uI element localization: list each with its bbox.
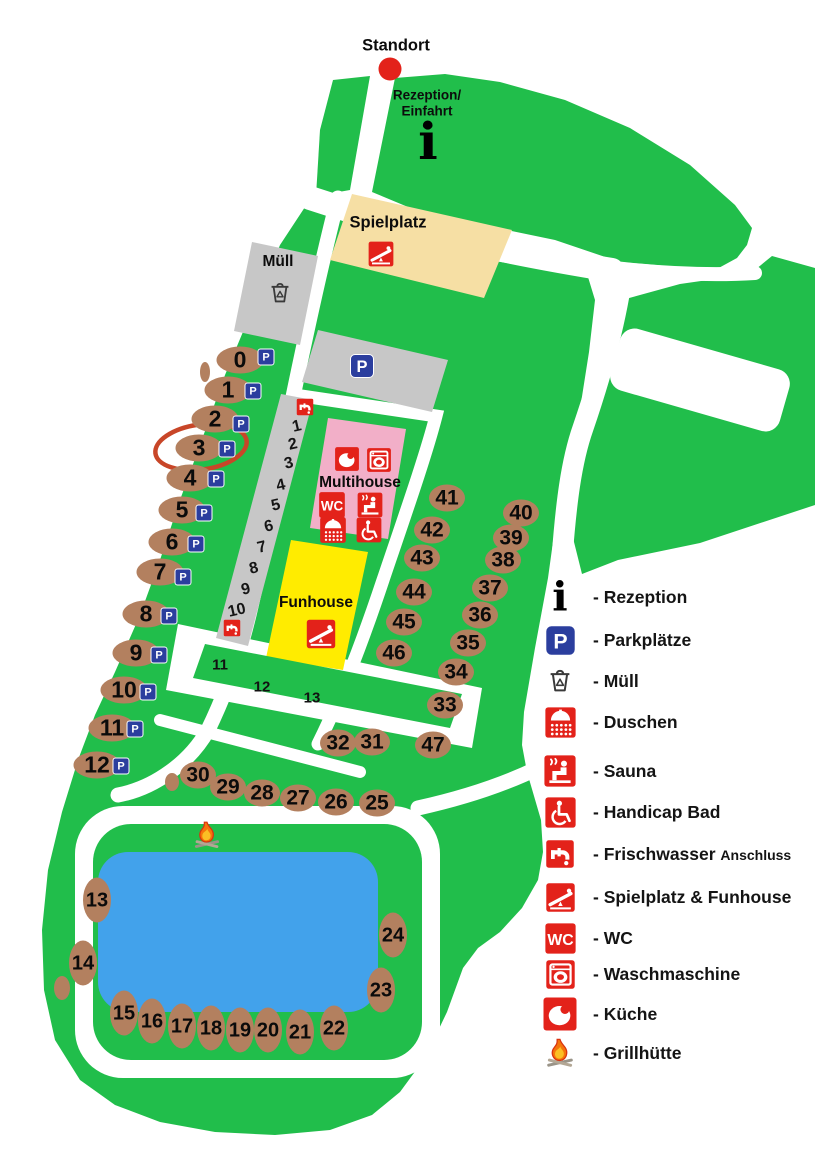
washer-icon-wrap (366, 447, 392, 473)
kitchen-icon-wrap (334, 446, 360, 472)
legend-row: - Sauna (542, 751, 656, 791)
pitch-marker-2: 2 (192, 406, 239, 433)
pitch-number: 11 (100, 717, 124, 740)
wc-icon (318, 491, 346, 519)
pitch-marker-0: 0 (217, 347, 264, 374)
tap-icon-wrap (223, 619, 241, 637)
pitch-number: 14 (72, 953, 94, 973)
standort-label: Standort (362, 37, 430, 56)
handicap-icon-wrap (356, 517, 383, 544)
parking-badge-icon: P (175, 569, 192, 586)
wc-icon (544, 922, 577, 955)
legend-label: - Frischwasser Anschluss (593, 844, 791, 865)
legend-label: - Küche (593, 1004, 657, 1025)
parking-badge-icon: P (113, 758, 130, 775)
pitch-number: 4 (184, 467, 197, 490)
parking-badge-icon: P (258, 349, 275, 366)
shower-icon (319, 516, 347, 544)
reception-label-line2: Einfahrt (401, 104, 452, 119)
shower-icon (544, 706, 577, 739)
area-label-11: 11 (212, 657, 228, 674)
area-label-13: 13 (304, 690, 321, 707)
area-label-12: 12 (254, 679, 271, 696)
handicap-icon (544, 796, 577, 829)
parking-badge-icon: P (188, 536, 205, 553)
parking-badge-icon: P (219, 441, 236, 458)
pitch-marker-28: 28 (244, 780, 280, 807)
pitch-number: 45 (392, 612, 415, 633)
trash-icon-wrap (267, 280, 294, 307)
sauna-icon-wrap (357, 492, 384, 519)
pitch-number: 22 (323, 1018, 345, 1038)
legend-icon-box (542, 996, 578, 1032)
legend-row: - Handicap Bad (542, 792, 720, 832)
multihouse-label: Multihouse (319, 474, 401, 492)
parking-badge-icon: P (245, 383, 262, 400)
pitch-number: 17 (171, 1016, 193, 1036)
legend-icon-box (542, 1036, 578, 1070)
shower-icon-wrap (319, 516, 347, 544)
parking-badge-icon: P (140, 684, 157, 701)
pitch-marker-21: 21 (286, 1010, 314, 1055)
pitch-marker-30: 30 (180, 762, 216, 789)
legend-icon-box (542, 796, 578, 829)
legend-row: - Müll (542, 661, 639, 701)
sauna-icon (357, 492, 384, 519)
pitch-marker-41: 41 (429, 485, 465, 512)
parking-badge-icon: P (161, 608, 178, 625)
pitch-number: 46 (382, 643, 405, 664)
pitch-number: 42 (420, 520, 443, 541)
legend-label: - Spielplatz & Funhouse (593, 887, 791, 908)
seesaw-icon-wrap (306, 619, 337, 650)
pitch-marker-18: 18 (197, 1006, 225, 1051)
pitch-marker-19: 19 (226, 1008, 254, 1053)
pitch-number: 39 (499, 528, 522, 549)
pitch-marker-26: 26 (318, 789, 354, 816)
pitch-marker-4: 4 (167, 465, 214, 492)
sauna-icon (543, 754, 577, 788)
pitch-marker-44: 44 (396, 579, 432, 606)
legend-icon-box (542, 839, 578, 869)
funhouse-label: Funhouse (279, 594, 353, 612)
washer-icon (366, 447, 392, 473)
pitch-marker-33: 33 (427, 692, 463, 719)
pitch-marker-24: 24 (379, 913, 407, 958)
parking-badge-icon: P (208, 471, 225, 488)
legend-row: - Rezeption (542, 577, 687, 617)
pitch-marker-25: 25 (359, 790, 395, 817)
pitch-marker-39: 39 (493, 525, 529, 552)
pitch-number: 6 (166, 531, 179, 554)
pitch-marker-20: 20 (254, 1008, 282, 1053)
pond (98, 852, 378, 1012)
parking-badge-icon: P (127, 721, 144, 738)
pitch-marker-13: 13 (83, 878, 111, 923)
pitch-number: 10 (111, 679, 137, 702)
legend-label: - Grillhütte (593, 1043, 681, 1064)
parking-icon (545, 625, 576, 656)
pitch-marker-22: 22 (320, 1006, 348, 1051)
pitch-number: 7 (154, 561, 167, 584)
pitch-number: 0 (234, 349, 247, 372)
parking-icon (350, 354, 374, 378)
wc-icon-wrap (318, 491, 346, 519)
legend-row: - Duschen (542, 702, 678, 742)
pitch-number: 8 (140, 603, 153, 626)
pitch-number: 27 (286, 788, 309, 809)
pitch-number: 20 (257, 1020, 279, 1040)
washer-icon (545, 959, 576, 990)
pitch-number: 18 (200, 1018, 222, 1038)
pitch-marker-3: 3 (176, 435, 223, 462)
legend-icon-box (542, 706, 578, 739)
pitch-marker-32: 32 (320, 730, 356, 757)
muell-label: Müll (263, 253, 294, 271)
info-icon (405, 119, 451, 165)
trash-icon (545, 666, 575, 696)
legend-label: - Müll (593, 671, 639, 692)
seesaw-icon (368, 241, 395, 268)
pitch-number: 32 (326, 733, 349, 754)
pitch-number: 34 (444, 662, 467, 683)
pitch-number: 26 (324, 792, 347, 813)
pitch-marker-16: 16 (138, 999, 166, 1044)
pitch-number: 5 (176, 499, 189, 522)
pitch-number: 43 (410, 548, 433, 569)
pitch-number: 35 (456, 633, 479, 654)
pitch-number: 2 (209, 408, 222, 431)
pitch-number: 12 (84, 754, 110, 777)
legend-icon-box (542, 754, 578, 788)
campfire-icon (543, 1036, 577, 1070)
tap-icon (296, 398, 314, 416)
parking-icon-wrap (350, 354, 374, 378)
pitch-number: 38 (491, 550, 514, 571)
legend-row: - Grillhütte (542, 1033, 681, 1073)
pitch-marker-46: 46 (376, 640, 412, 667)
pitch-marker-43: 43 (404, 545, 440, 572)
legend-label: - Parkplätze (593, 630, 691, 651)
pitch-number: 13 (86, 890, 108, 910)
pitch-marker-36: 36 (462, 602, 498, 629)
spielplatz-label: Spielplatz (349, 214, 426, 233)
pitch-number: 30 (186, 765, 209, 786)
parking-badge-icon: P (151, 647, 168, 664)
info-icon (542, 578, 578, 616)
legend-row: - Küche (542, 994, 657, 1034)
pitch-number: 1 (222, 379, 235, 402)
reception-label-line1: Rezeption/ (393, 88, 461, 103)
pitch-marker-37: 37 (472, 575, 508, 602)
seesaw-icon (545, 882, 576, 913)
parking-badge-icon: P (233, 416, 250, 433)
pitch-number: 25 (365, 793, 388, 814)
pitch-marker-31: 31 (354, 729, 390, 756)
pitch-marker-35: 35 (450, 630, 486, 657)
pitch-number: 29 (216, 777, 239, 798)
pitch-number: 44 (402, 582, 425, 603)
kitchen-icon (334, 446, 360, 472)
legend-row: - Spielplatz & Funhouse (542, 877, 791, 917)
tap-icon (545, 839, 575, 869)
pitch-number: 19 (229, 1020, 251, 1040)
kitchen-icon (542, 996, 578, 1032)
pitch-number: 33 (433, 695, 456, 716)
pitch-number: 47 (421, 735, 444, 756)
legend-row: - WC (542, 918, 633, 958)
pitch-number: 31 (360, 732, 383, 753)
tap-icon-wrap (296, 398, 314, 416)
pitch-marker-34: 34 (438, 659, 474, 686)
legend-label-small: Anschluss (720, 847, 791, 863)
legend-row: - Waschmaschine (542, 954, 740, 994)
pitch-marker-27: 27 (280, 785, 316, 812)
handicap-icon (356, 517, 383, 544)
pitch-number: 40 (509, 503, 532, 524)
info-icon-wrap (405, 119, 451, 165)
legend-icon-box (542, 882, 578, 913)
pitch-marker-15: 15 (110, 991, 138, 1036)
legend-label: - WC (593, 928, 633, 949)
legend-label: - Rezeption (593, 587, 687, 608)
legend-label: - Duschen (593, 712, 678, 733)
pitch-number: 9 (130, 642, 143, 665)
legend-icon-box (542, 959, 578, 990)
pitch-number: 36 (468, 605, 491, 626)
pitch-number: 28 (250, 783, 273, 804)
pitch-number: 41 (435, 488, 458, 509)
pitch-marker-47: 47 (415, 732, 451, 759)
campfire-icon-wrap (191, 819, 223, 851)
legend-row: - Parkplätze (542, 620, 691, 660)
pitch-number: 23 (370, 980, 392, 1000)
pitch-number: 24 (382, 925, 404, 945)
legend-label: - Waschmaschine (593, 964, 740, 985)
pitch-marker-23: 23 (367, 968, 395, 1013)
tap-icon (223, 619, 241, 637)
legend-label: - Sauna (593, 761, 656, 782)
pitch-number: 21 (289, 1022, 311, 1042)
pitch-marker-40: 40 (503, 500, 539, 527)
pitch-marker-45: 45 (386, 609, 422, 636)
pitch-marker-17: 17 (168, 1004, 196, 1049)
legend-icon-box (542, 922, 578, 955)
campground-map: i P WC (0, 0, 815, 1152)
pitch-marker-14: 14 (69, 941, 97, 986)
legend-label: - Handicap Bad (593, 802, 720, 823)
seesaw-icon-wrap (368, 241, 395, 268)
pitch-marker-42: 42 (414, 517, 450, 544)
pitch-number: 37 (478, 578, 501, 599)
road-east (605, 267, 755, 274)
pitch-number: 3 (193, 437, 206, 460)
pitch-number: 15 (113, 1003, 135, 1023)
pitch-number: 16 (141, 1011, 163, 1031)
legend-icon-box (542, 578, 578, 616)
seesaw-icon (306, 619, 337, 650)
legend-icon-box (542, 625, 578, 656)
legend-row: - Frischwasser Anschluss (542, 834, 791, 874)
legend-icon-box (542, 666, 578, 696)
parking-badge-icon: P (196, 505, 213, 522)
trash-icon (267, 280, 294, 307)
campfire-icon (191, 819, 223, 851)
standort-dot (379, 58, 402, 81)
